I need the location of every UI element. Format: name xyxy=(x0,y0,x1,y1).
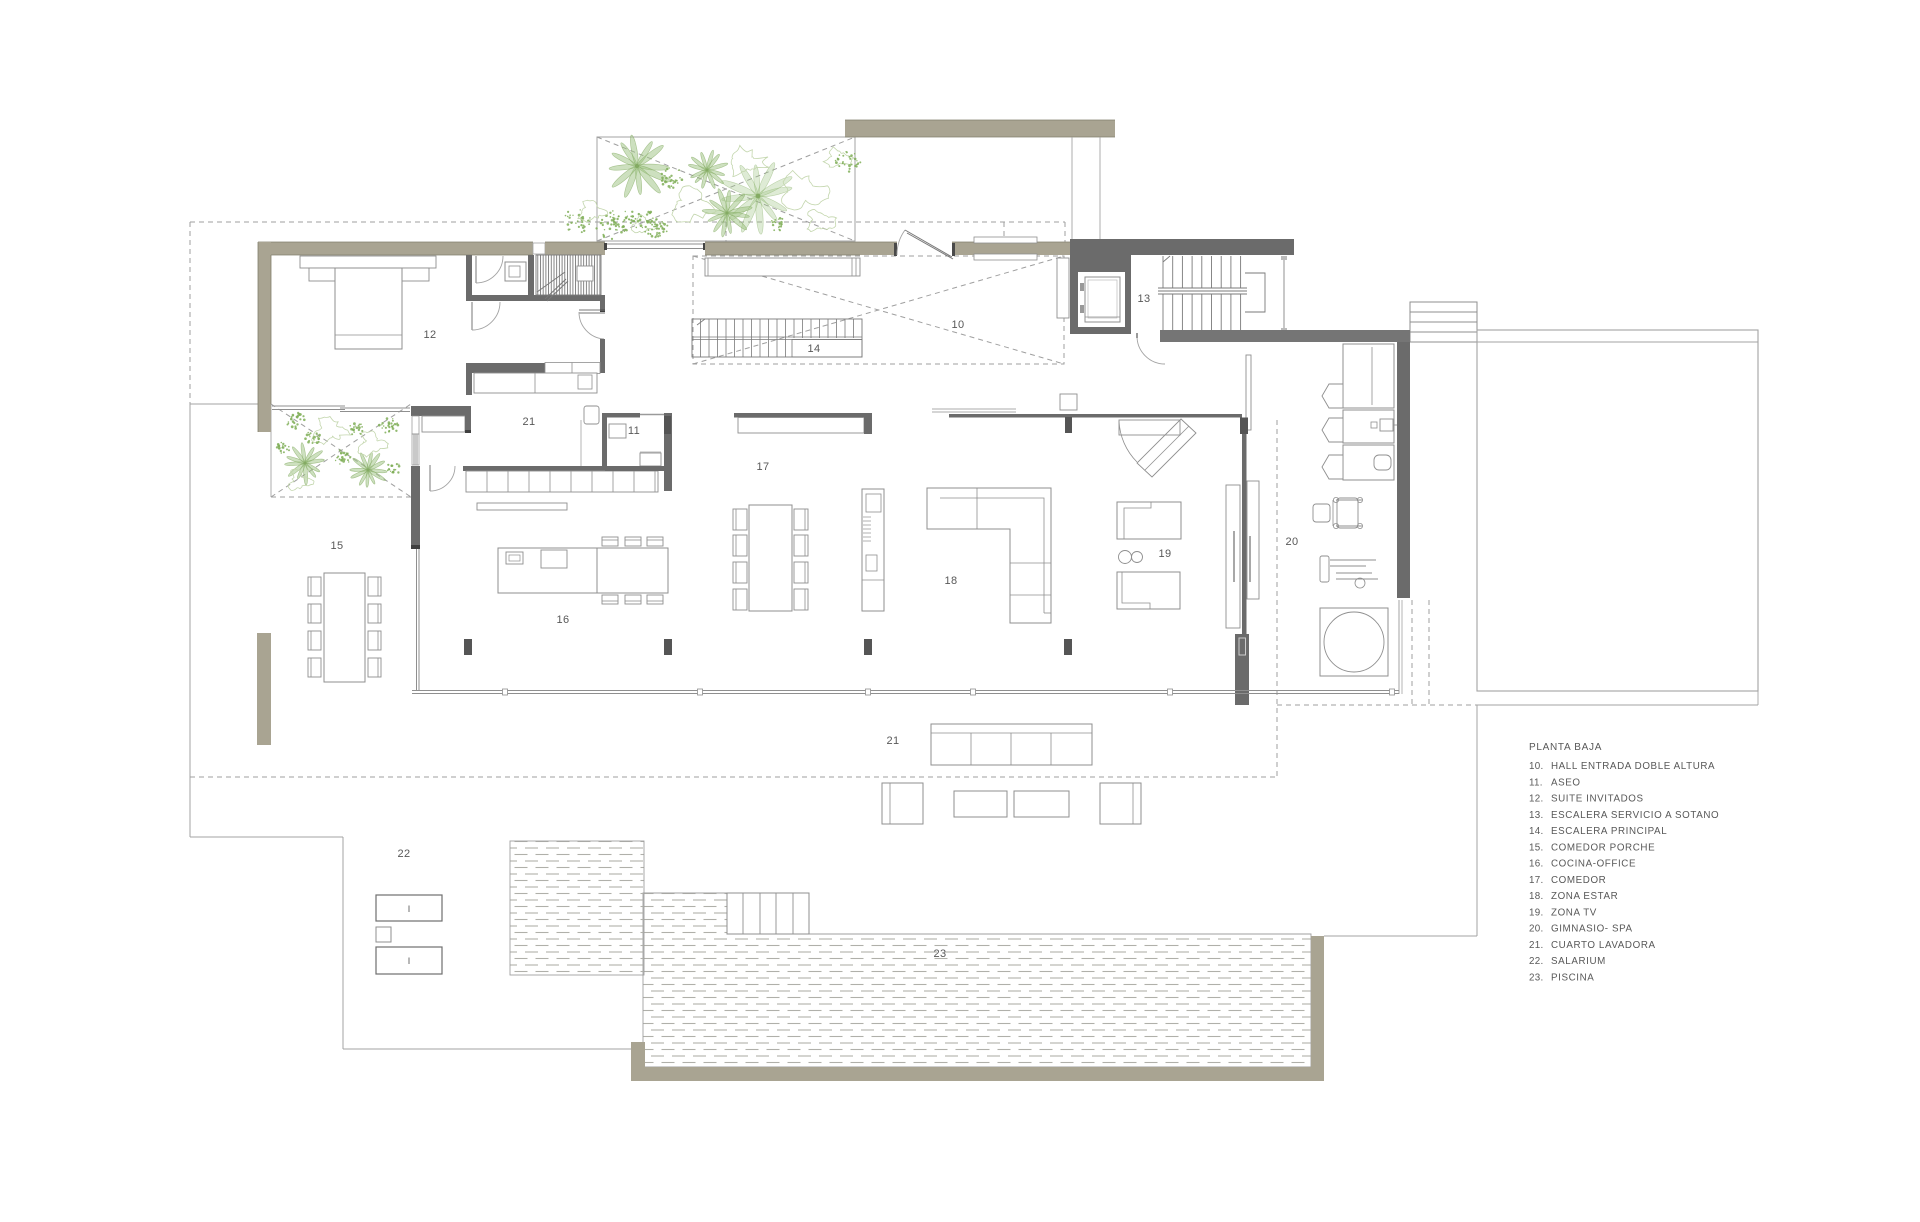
svg-text:12.: 12. xyxy=(1529,794,1544,805)
svg-text:ESCALERA PRINCIPAL: ESCALERA PRINCIPAL xyxy=(1551,826,1667,837)
svg-text:PLANTA BAJA: PLANTA BAJA xyxy=(1529,742,1602,753)
svg-text:14.: 14. xyxy=(1529,826,1544,837)
svg-text:SUITE INVITADOS: SUITE INVITADOS xyxy=(1551,794,1644,805)
svg-text:16: 16 xyxy=(556,614,569,626)
svg-text:ZONA ESTAR: ZONA ESTAR xyxy=(1551,891,1618,902)
svg-text:22.: 22. xyxy=(1529,956,1544,967)
svg-text:20: 20 xyxy=(1285,536,1298,548)
svg-text:18.: 18. xyxy=(1529,891,1544,902)
svg-text:COCINA-OFFICE: COCINA-OFFICE xyxy=(1551,859,1636,870)
svg-text:ASEO: ASEO xyxy=(1551,777,1581,788)
svg-text:17: 17 xyxy=(756,461,769,473)
svg-text:12: 12 xyxy=(423,329,436,341)
svg-text:14: 14 xyxy=(807,343,820,355)
svg-text:22: 22 xyxy=(397,848,410,860)
svg-text:21: 21 xyxy=(522,416,535,428)
svg-text:19: 19 xyxy=(1158,548,1171,560)
svg-text:CUARTO LAVADORA: CUARTO LAVADORA xyxy=(1551,940,1656,951)
svg-text:I: I xyxy=(408,904,411,914)
svg-text:COMEDOR: COMEDOR xyxy=(1551,875,1606,886)
svg-text:15.: 15. xyxy=(1529,842,1544,853)
svg-text:ESCALERA SERVICIO A SOTANO: ESCALERA SERVICIO A SOTANO xyxy=(1551,810,1719,821)
svg-text:13.: 13. xyxy=(1529,810,1544,821)
svg-text:15: 15 xyxy=(330,540,343,552)
svg-text:ZONA TV: ZONA TV xyxy=(1551,907,1597,918)
svg-text:11: 11 xyxy=(628,425,640,437)
svg-text:19.: 19. xyxy=(1529,907,1544,918)
svg-text:SALARIUM: SALARIUM xyxy=(1551,956,1606,967)
svg-text:PISCINA: PISCINA xyxy=(1551,972,1594,983)
svg-text:23.: 23. xyxy=(1529,972,1544,983)
svg-text:10.: 10. xyxy=(1529,761,1544,772)
svg-text:HALL ENTRADA DOBLE ALTURA: HALL ENTRADA DOBLE ALTURA xyxy=(1551,761,1715,772)
svg-text:17.: 17. xyxy=(1529,875,1544,886)
svg-text:COMEDOR PORCHE: COMEDOR PORCHE xyxy=(1551,842,1655,853)
svg-text:21.: 21. xyxy=(1529,940,1544,951)
svg-text:13: 13 xyxy=(1137,293,1150,305)
svg-text:21: 21 xyxy=(886,735,899,747)
svg-text:23: 23 xyxy=(933,948,946,960)
svg-text:11.: 11. xyxy=(1529,777,1543,788)
svg-text:18: 18 xyxy=(944,575,957,587)
svg-text:16.: 16. xyxy=(1529,859,1544,870)
svg-text:20.: 20. xyxy=(1529,924,1544,935)
svg-text:GIMNASIO- SPA: GIMNASIO- SPA xyxy=(1551,924,1633,935)
svg-text:10: 10 xyxy=(951,319,964,331)
svg-text:I: I xyxy=(408,956,411,966)
